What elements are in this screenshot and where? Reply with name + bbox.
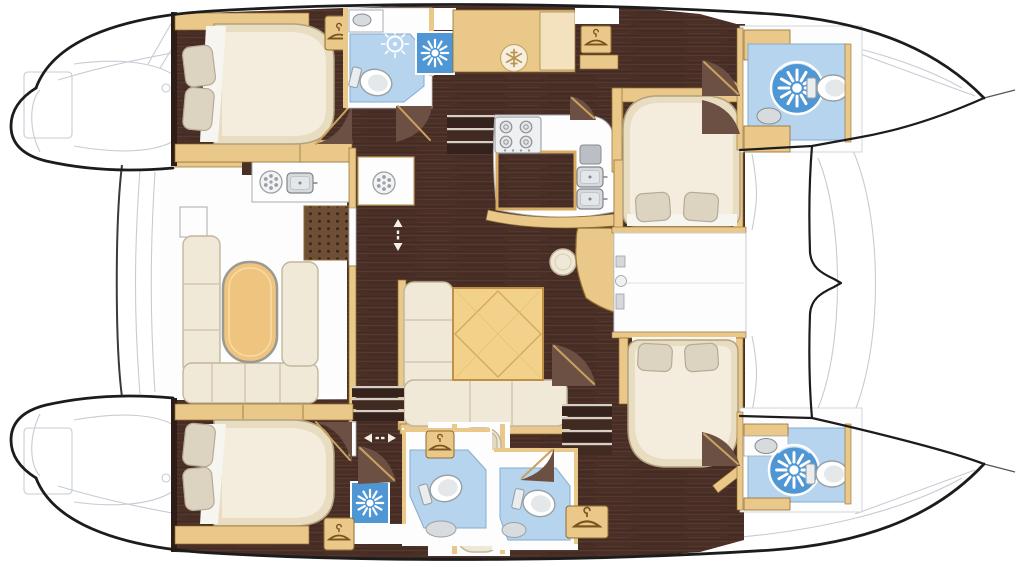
mattress-inner xyxy=(222,32,326,136)
bow-whisker-top xyxy=(984,90,1015,98)
locker-under-stall xyxy=(346,524,408,544)
shelf-below-wardrobe xyxy=(580,55,618,69)
stern-bottom-outline xyxy=(11,396,173,478)
toilet xyxy=(807,75,849,101)
aft-platform-edge xyxy=(117,165,122,397)
foot-shelf xyxy=(175,144,305,162)
wetbar-burner-icon xyxy=(260,171,282,193)
tech-fixture-2 xyxy=(616,276,627,287)
port-hull-steps xyxy=(352,386,404,421)
floor-plan-page xyxy=(0,0,1024,567)
foredeck-line-2 xyxy=(850,144,876,422)
sink xyxy=(757,108,781,124)
shower-tray-2 xyxy=(502,523,526,538)
shelf-tan xyxy=(744,424,788,436)
cabinet-bottom xyxy=(744,498,790,510)
stern-top-davit-1 xyxy=(148,22,172,64)
bulkhead-tan-upper xyxy=(349,148,356,208)
tech-fixture-1 xyxy=(616,256,625,267)
pillow-2 xyxy=(683,192,719,222)
sidedeck-bottom-line xyxy=(752,336,757,412)
aft-deck-line-2 xyxy=(151,172,155,392)
headboard-shelf xyxy=(175,404,353,420)
cockpit-fridge xyxy=(180,207,207,237)
cockpit-bench-bottom xyxy=(183,363,318,403)
sliding-door-upper xyxy=(349,208,356,266)
tech-wall-top xyxy=(612,227,746,233)
step-nosing xyxy=(352,386,404,388)
galley-island-floor xyxy=(497,152,575,209)
aft-deck-line-1 xyxy=(136,170,141,394)
step-nosing xyxy=(562,430,612,432)
console-burner-icon xyxy=(373,172,395,194)
sink xyxy=(755,439,777,454)
stern-bottom-locker xyxy=(24,428,72,494)
bed-rail-left xyxy=(612,88,622,172)
pillow-2 xyxy=(684,343,719,372)
wetbar-sink-icon xyxy=(287,173,318,193)
cabin-wall-dark xyxy=(171,12,177,166)
companionway-steps xyxy=(447,115,497,154)
stern-top-outline xyxy=(11,88,173,170)
pillow-1 xyxy=(182,44,217,87)
step-nosing xyxy=(447,128,497,130)
stern-top-curve-lower xyxy=(74,142,172,151)
galley-hatch xyxy=(580,145,601,164)
stove-icon xyxy=(495,117,541,153)
step-nosing xyxy=(447,115,497,117)
wardrobe xyxy=(324,518,354,550)
stern-bottom-curve-upper xyxy=(74,415,172,424)
galley-sink-icon xyxy=(577,189,608,209)
stern-bottom-cleat xyxy=(162,474,170,482)
cockpit-bench-right xyxy=(282,262,318,366)
bathroom-wall-left xyxy=(343,8,348,108)
vanity-sink xyxy=(353,14,371,26)
mattress-inner xyxy=(222,428,326,518)
deck-sliver xyxy=(575,8,619,24)
foot-shelf xyxy=(175,526,309,544)
saloon-sofa-bottom xyxy=(404,380,567,426)
bath-wall-left xyxy=(402,430,406,532)
pillow-1 xyxy=(637,343,672,372)
bow-bottom-line xyxy=(855,470,975,514)
bath-wall-right xyxy=(845,424,851,504)
helm-grating-mat xyxy=(304,206,350,260)
toilet xyxy=(806,461,848,487)
step-nosing xyxy=(352,410,404,412)
stern-top-locker xyxy=(24,72,72,138)
step-nosing xyxy=(562,404,612,406)
floor-plan-svg xyxy=(0,0,1024,567)
wall-tan-vertical xyxy=(619,338,628,404)
bath-wall-right xyxy=(845,44,851,142)
pillow-1 xyxy=(635,192,671,222)
tech-fixture-3 xyxy=(616,294,624,309)
shower-rose-icon xyxy=(382,31,409,58)
step-nosing xyxy=(447,141,497,143)
step-nosing xyxy=(562,417,612,419)
bath2-wall-top xyxy=(494,448,578,452)
nacelle-outline xyxy=(809,146,841,418)
step-nosing xyxy=(562,443,612,445)
wall-tan-vertical xyxy=(614,160,623,228)
cockpit-bench-left xyxy=(183,236,220,374)
foredeck-line-1 xyxy=(818,158,838,408)
shower-tray xyxy=(426,521,456,537)
stern-bottom-inner-curve xyxy=(32,414,40,476)
nav-stool xyxy=(550,249,576,275)
sidedeck-top-line xyxy=(752,154,757,230)
bow-whisker-bottom xyxy=(984,464,1015,472)
cockpit-table xyxy=(223,262,277,362)
step-nosing xyxy=(352,398,404,400)
technical-room xyxy=(612,227,746,338)
stern-top-cleat xyxy=(162,84,170,92)
pillow-2 xyxy=(182,467,215,511)
pillow-1 xyxy=(182,423,216,468)
fridge-counter-light xyxy=(540,12,575,70)
galley-sink-icon xyxy=(577,167,608,187)
stern-top-inner-curve xyxy=(32,90,40,152)
pillow-2 xyxy=(182,87,215,131)
cockpit xyxy=(160,146,350,403)
